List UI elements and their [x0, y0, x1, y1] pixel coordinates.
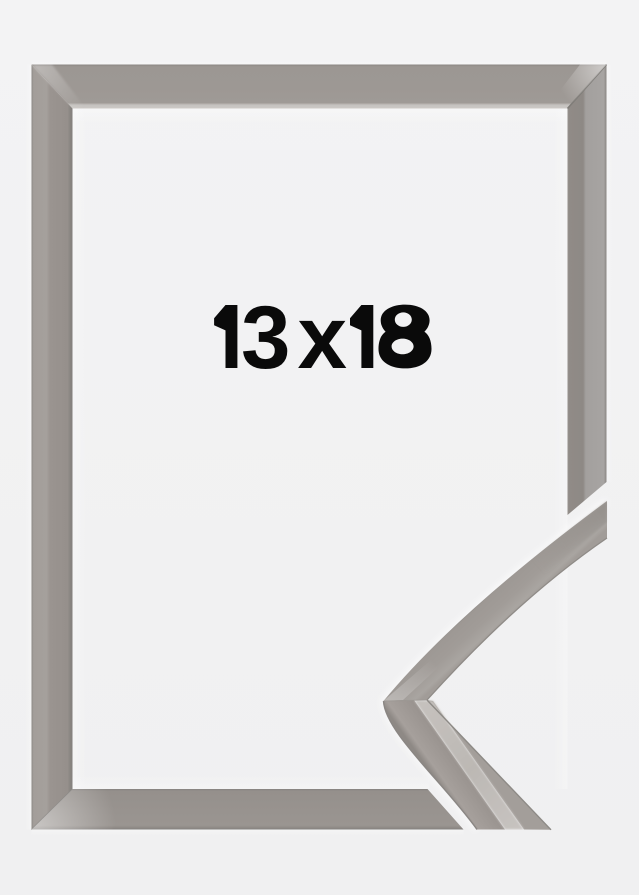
- svg-text:x: x: [298, 287, 348, 387]
- svg-text:3: 3: [241, 287, 291, 387]
